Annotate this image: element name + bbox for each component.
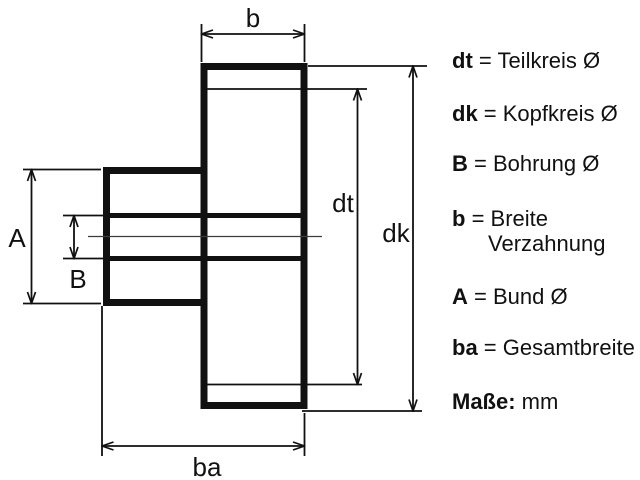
legend-item-ba: ba = Gesamtbreite: [452, 335, 635, 360]
legend-item-dk: dk = Kopfkreis Ø: [452, 101, 618, 126]
legend-item-B: B = Bohrung Ø: [452, 151, 599, 176]
legend-key-dk: dk: [452, 101, 478, 126]
legend-key-A: A: [452, 284, 468, 309]
legend-key-dt: dt: [452, 48, 473, 73]
legend-text-dk: = Kopfkreis Ø: [478, 101, 618, 126]
dim-label-dk: dk: [382, 218, 410, 248]
legend-text-dt: = Teilkreis Ø: [473, 48, 600, 73]
gear-dimension-sheet: b A B dt dk ba dt = Teilkreis Ø dk = Kop…: [0, 0, 640, 480]
dim-label-ba: ba: [193, 452, 222, 480]
legend-text-A: = Bund Ø: [468, 284, 568, 309]
legend-item-b: b = Breite Verzahnung: [452, 206, 605, 256]
legend-item-masse: Maße: mm: [452, 389, 558, 414]
dim-label-b: b: [246, 3, 260, 33]
legend-key-ba: ba: [452, 335, 478, 360]
legend-item-A: A = Bund Ø: [452, 284, 568, 309]
legend: dt = Teilkreis Ø dk = Kopfkreis Ø B = Bo…: [452, 0, 638, 480]
legend-key-b: b: [452, 206, 465, 231]
legend-key-masse: Maße:: [452, 389, 516, 414]
dim-label-dt: dt: [332, 188, 354, 218]
legend-text-ba: = Gesamtbreite: [478, 335, 635, 360]
legend-text-masse: mm: [516, 389, 559, 414]
dim-label-A: A: [8, 223, 26, 253]
legend-text-b: = Breite Verzahnung: [465, 206, 605, 256]
dim-label-B: B: [69, 264, 86, 294]
legend-item-dt: dt = Teilkreis Ø: [452, 48, 600, 73]
legend-key-B: B: [452, 151, 468, 176]
legend-text-B: = Bohrung Ø: [468, 151, 599, 176]
